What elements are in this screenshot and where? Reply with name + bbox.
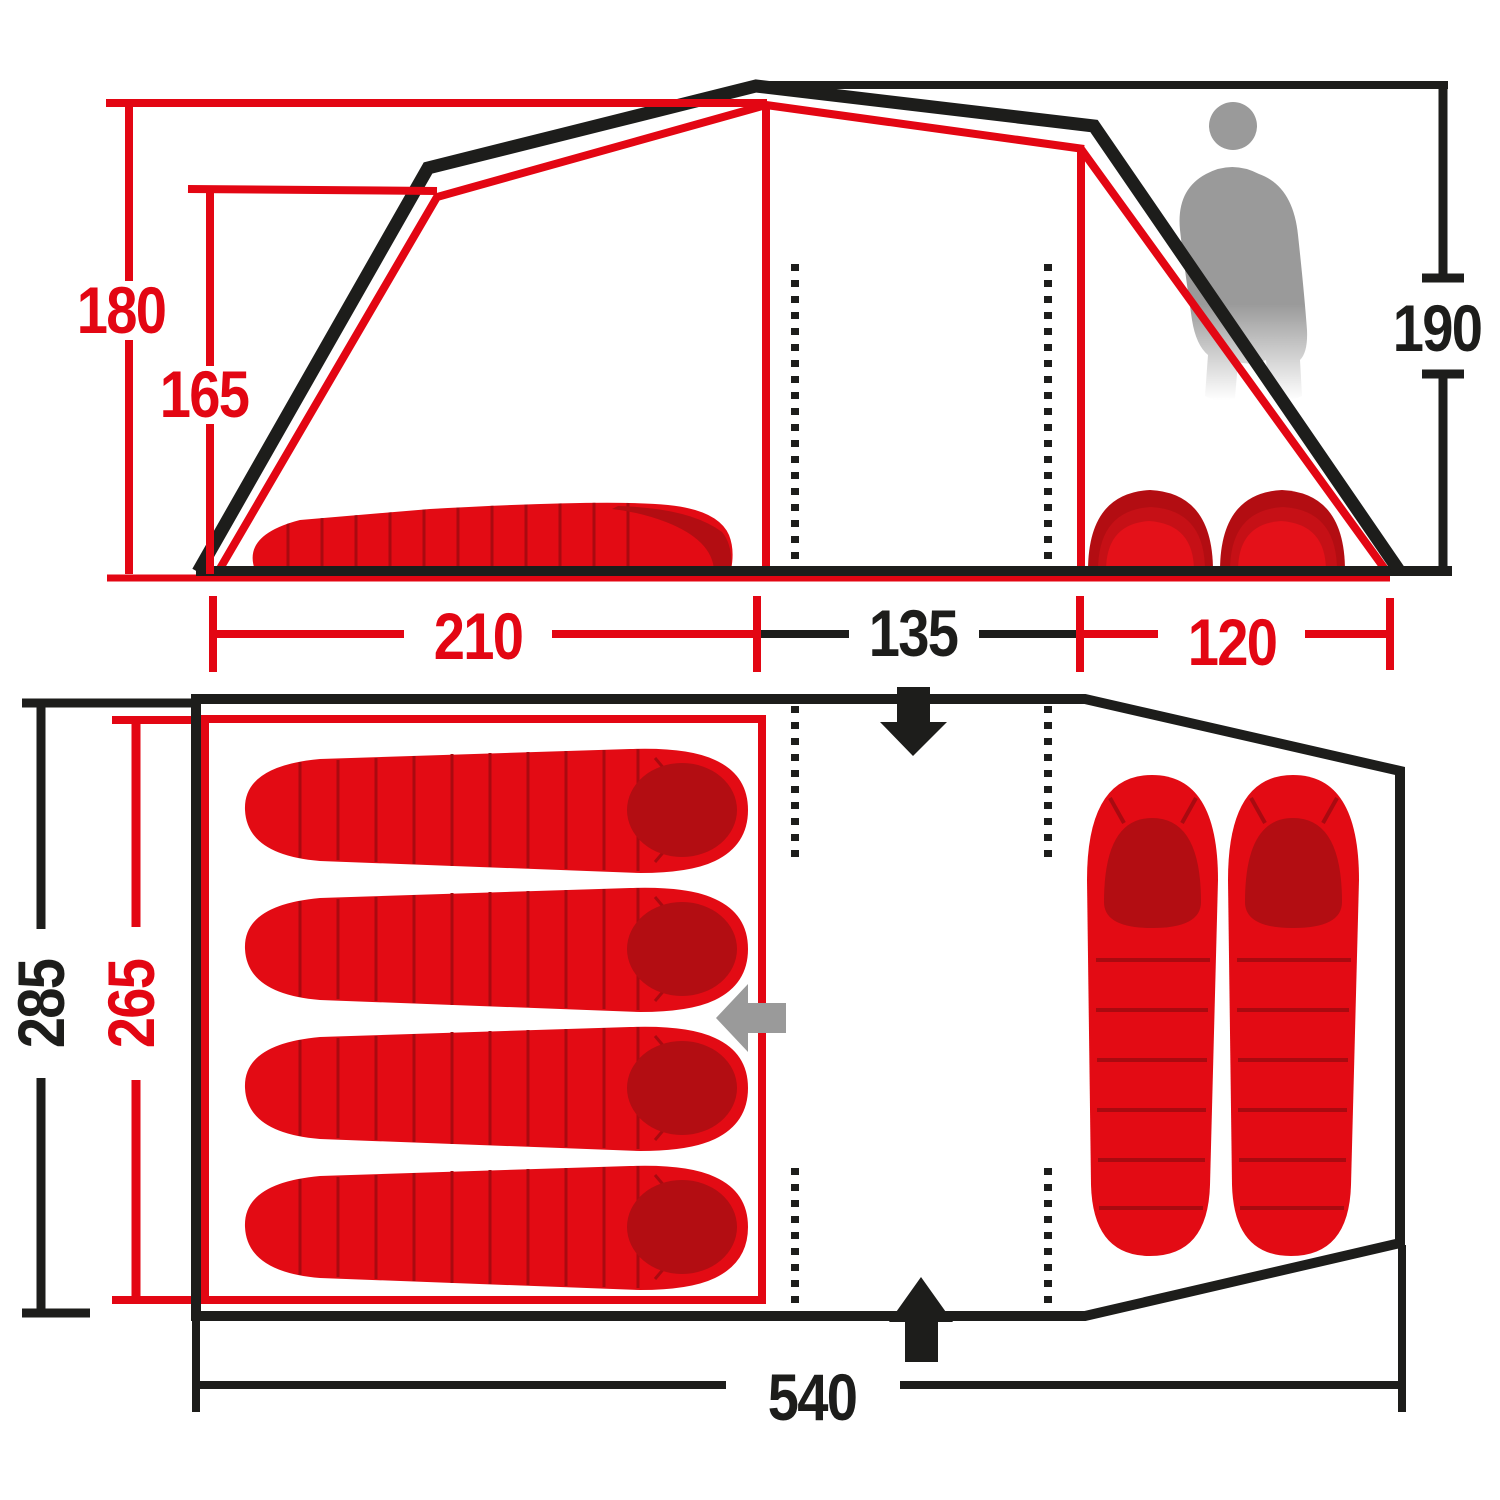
width-label-210: 210: [434, 603, 523, 669]
width-label-135: 135: [869, 600, 958, 666]
mat-2: [1220, 490, 1345, 571]
door-zip-dotted-lines-side: [795, 264, 1048, 562]
sleeping-bags-right-area: [1087, 775, 1359, 1256]
sleeping-bag-3: [245, 1027, 748, 1151]
sleeping-mats-side-view: [1088, 490, 1345, 571]
height-label-190: 190: [1393, 295, 1482, 361]
door-zip-dotted-lines-plan: [795, 706, 1048, 1312]
sleeping-bags-left-cabin: [245, 749, 748, 1290]
height-label-180: 180: [77, 277, 166, 343]
sleeping-bag-2: [245, 888, 748, 1012]
sleeping-bag-4: [245, 1166, 748, 1290]
mat-1: [1088, 490, 1213, 571]
length-label-540: 540: [768, 1364, 857, 1430]
diagram-canvas: [0, 0, 1500, 1500]
inner-door-arrow-left-icon: [716, 984, 786, 1052]
sleeping-bag-side-view: [253, 500, 733, 570]
dimension-line-180: [106, 103, 767, 574]
entrance-arrow-up-icon: [889, 1277, 953, 1362]
sleeping-bag-6: [1228, 775, 1359, 1256]
person-silhouette: [1180, 102, 1308, 401]
sleeping-bag-5: [1087, 775, 1218, 1256]
width-label-120: 120: [1188, 609, 1277, 675]
tent-dimension-diagram: 180 165 190 210 135 120 285 265 540: [0, 0, 1500, 1500]
sleeping-bag-1: [245, 749, 748, 873]
depth-label-285: 285: [8, 960, 74, 1049]
depth-label-265: 265: [98, 960, 164, 1049]
height-label-165: 165: [160, 361, 249, 427]
